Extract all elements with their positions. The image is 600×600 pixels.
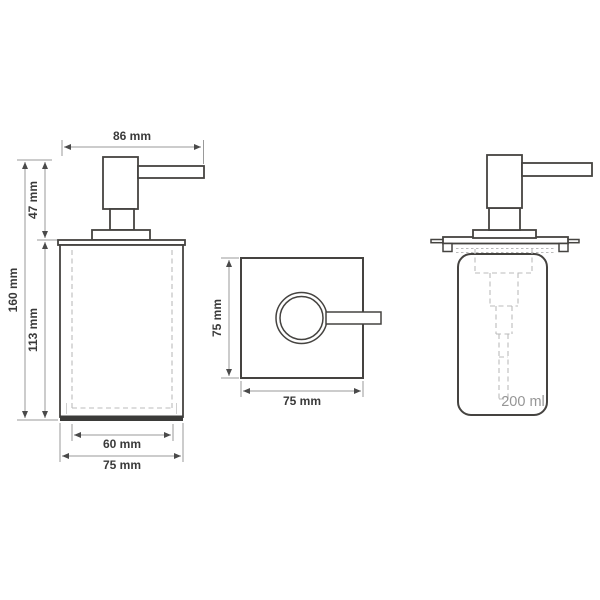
dim-label-body-height: 113 mm xyxy=(26,308,40,352)
side-view: 200 ml xyxy=(431,155,592,415)
pump-collar xyxy=(92,230,150,240)
holder-tab-left xyxy=(443,244,452,252)
drawing-canvas: 86 mm 160 mm 47 mm 113 mm 60 mm 75 mm 75… xyxy=(0,0,600,600)
dim-label-pump-width: 86 mm xyxy=(113,129,151,143)
body-outline xyxy=(60,245,183,417)
dim-label-inner-width: 60 mm xyxy=(103,437,141,451)
dim-label-depth: 75 mm xyxy=(210,299,224,337)
body-base xyxy=(60,416,183,422)
pump-head xyxy=(103,157,138,209)
pump-lever-side xyxy=(522,163,592,176)
front-view: 86 mm 160 mm 47 mm 113 mm 60 mm 75 mm xyxy=(6,129,204,472)
dim-label-width: 75 mm xyxy=(283,394,321,408)
dim-label-total-height: 160 mm xyxy=(6,268,20,313)
pump-ring-outer xyxy=(276,293,327,344)
bottle-outline xyxy=(458,254,547,415)
dispenser-technical-drawing: 86 mm 160 mm 47 mm 113 mm 60 mm 75 mm 75… xyxy=(0,0,600,600)
pump-lever xyxy=(138,166,204,178)
pump-lever-top xyxy=(326,312,381,324)
dim-label-outer-width: 75 mm xyxy=(103,458,141,472)
pump-neck-side xyxy=(489,208,520,230)
holder-tab-right xyxy=(559,244,568,252)
dim-label-pump-height: 47 mm xyxy=(26,181,40,219)
volume-label: 200 ml xyxy=(501,394,545,410)
pump-collar-side xyxy=(473,230,536,238)
pump-head-side xyxy=(487,155,522,208)
pump-neck xyxy=(110,209,134,230)
top-view: 75 mm 75 mm xyxy=(210,258,381,408)
